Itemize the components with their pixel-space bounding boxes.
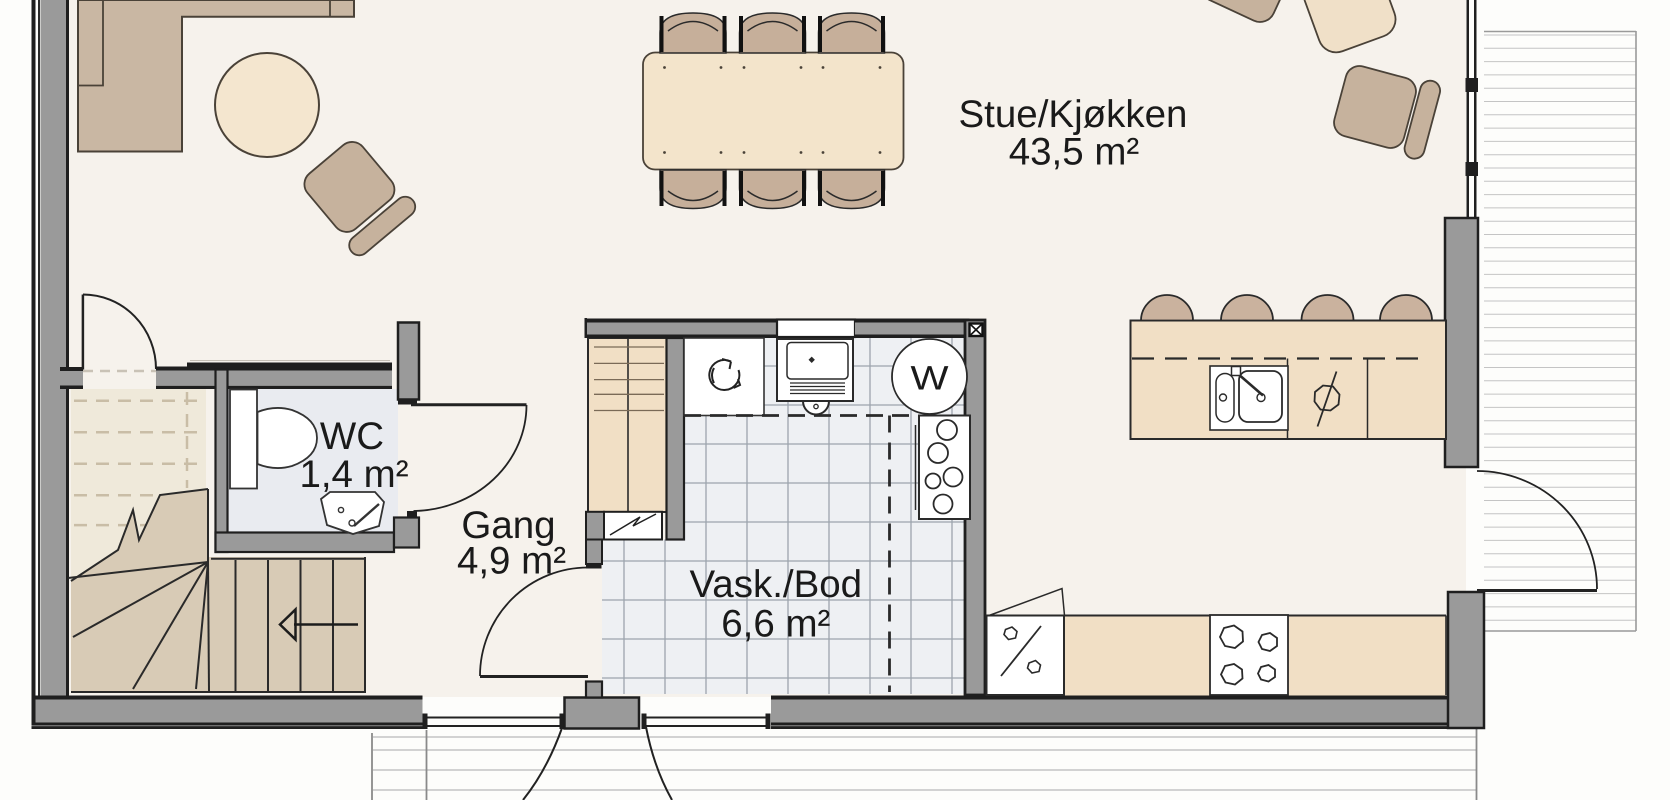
svg-text:43,5 m²: 43,5 m² (1009, 131, 1140, 174)
svg-text:4,9 m²: 4,9 m² (457, 540, 566, 583)
svg-text:6,6 m²: 6,6 m² (721, 602, 830, 645)
svg-text:Vask./Bod: Vask./Bod (689, 563, 862, 606)
svg-text:1,4 m²: 1,4 m² (299, 453, 408, 496)
svg-text:W: W (911, 360, 949, 398)
svg-text:WC: WC (320, 415, 384, 458)
